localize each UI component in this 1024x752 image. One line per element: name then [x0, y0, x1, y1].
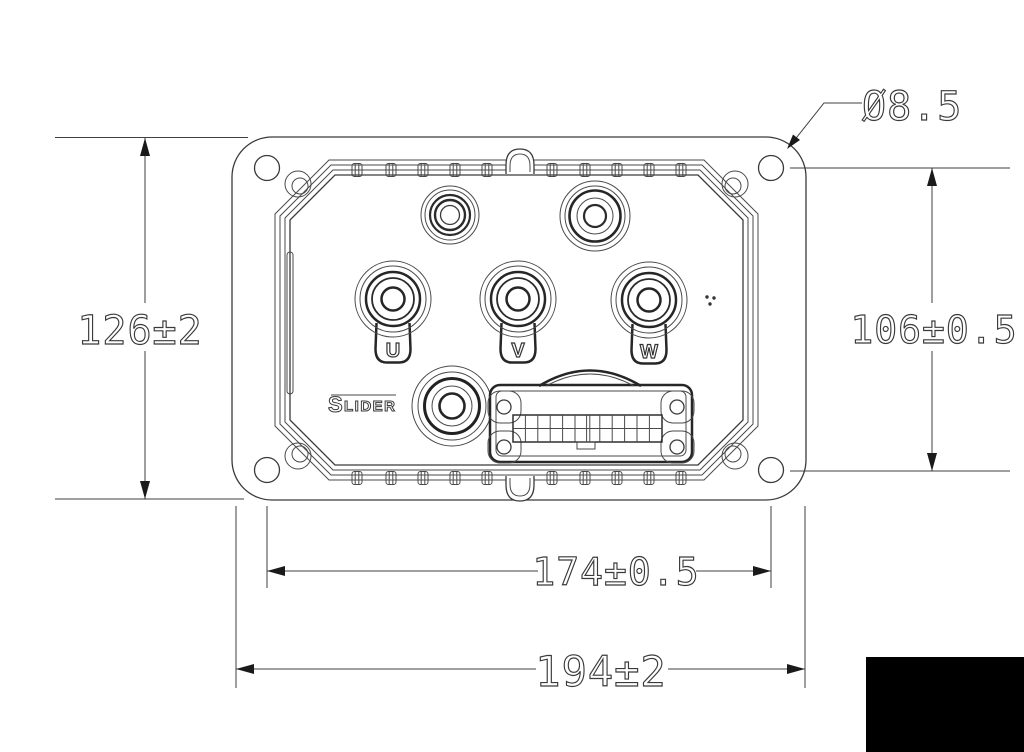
- brand-logo-rest: LIDER: [344, 398, 397, 415]
- dim-hole-diameter: Ø8.5: [862, 84, 962, 130]
- terminal-w: W: [611, 262, 687, 364]
- dim-overall-width: 194±2: [535, 647, 666, 696]
- connector-bottom-round: [412, 366, 492, 446]
- corner-hole-bottom-right: [759, 458, 784, 483]
- hole-diameter-leader: [789, 103, 862, 147]
- terminal-w-label: W: [640, 342, 658, 363]
- dim-mount-hole-width: 174±0.5: [532, 550, 699, 594]
- marker-dots: [705, 295, 715, 305]
- corner-hole-top-left: [255, 156, 280, 181]
- brand-logo: S LIDER: [328, 392, 397, 417]
- technical-drawing: U V W: [0, 0, 1024, 752]
- terminal-u: U: [355, 261, 431, 363]
- connector-top-large: [560, 181, 630, 251]
- dim-mount-hole-height: 106±0.5: [850, 308, 1017, 352]
- terminal-v: V: [480, 261, 556, 363]
- corner-hole-top-right: [759, 156, 784, 181]
- dim-overall-height: 126±2: [77, 308, 202, 354]
- pin-connector-block: [488, 371, 694, 464]
- brand-logo-first-letter: S: [328, 392, 343, 417]
- terminal-u-label: U: [386, 340, 400, 362]
- redaction-block: [866, 657, 1024, 752]
- terminal-v-label: V: [511, 340, 525, 362]
- corner-hole-bottom-left: [255, 458, 280, 483]
- connector-top-small: [421, 186, 479, 244]
